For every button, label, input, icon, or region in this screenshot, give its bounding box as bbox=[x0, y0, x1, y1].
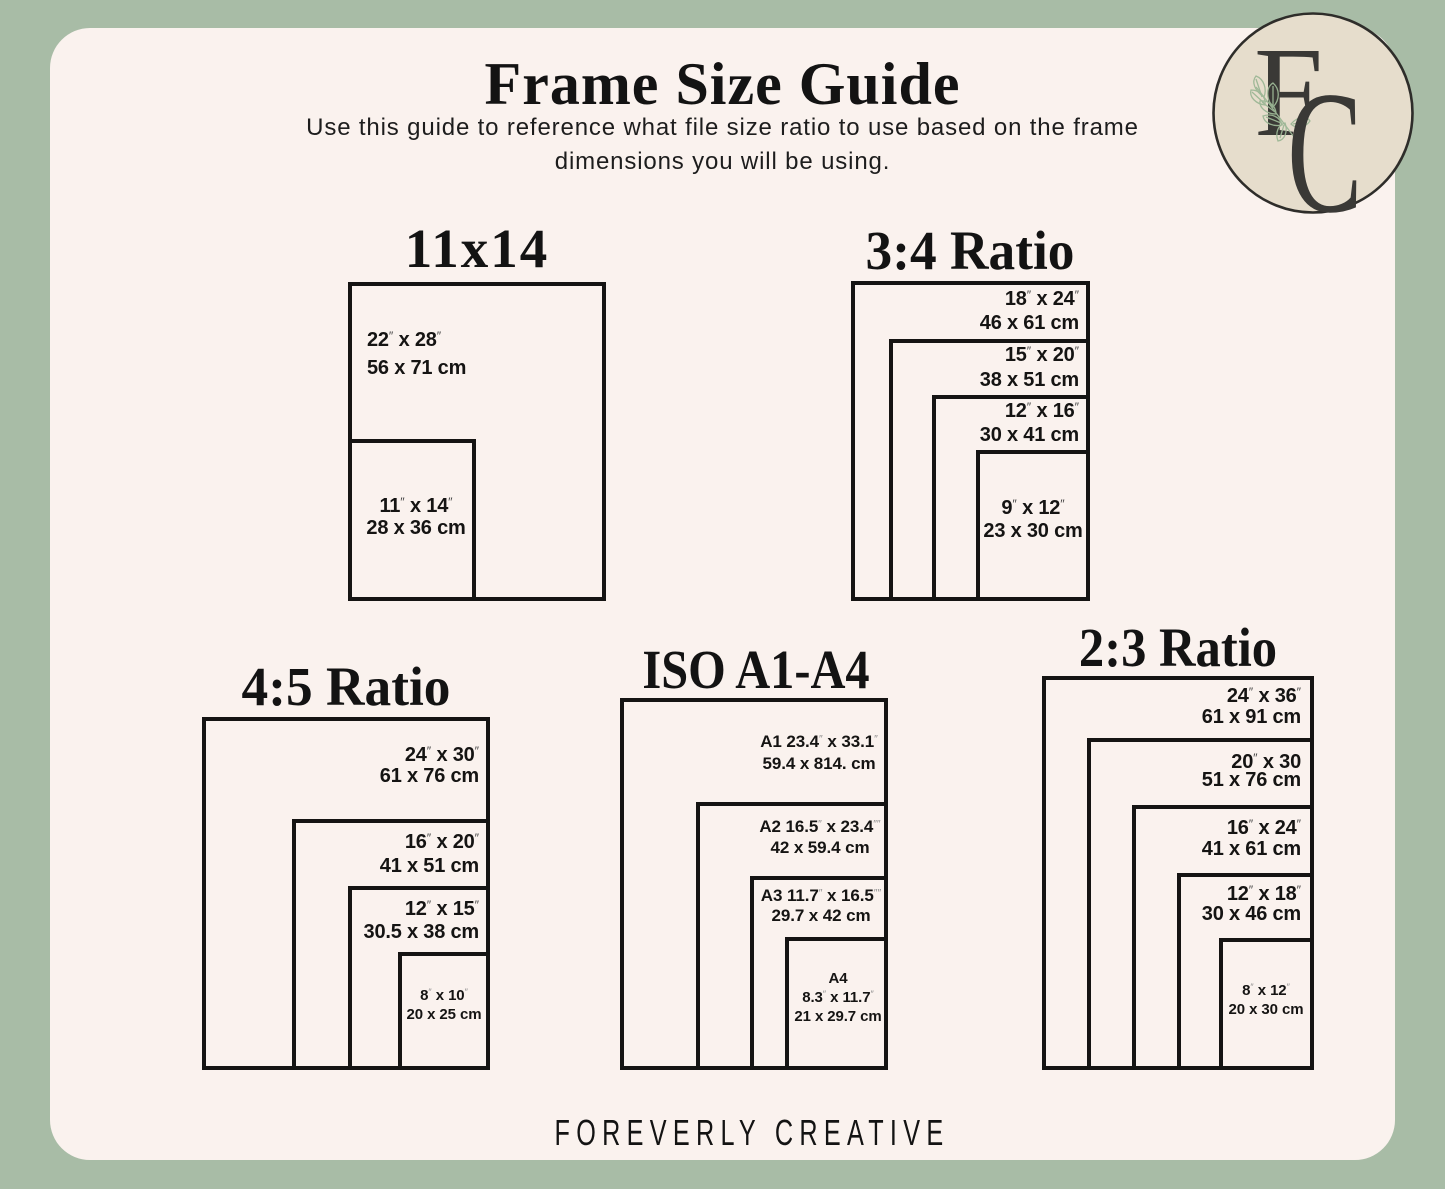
svg-text:C: C bbox=[1287, 55, 1362, 215]
